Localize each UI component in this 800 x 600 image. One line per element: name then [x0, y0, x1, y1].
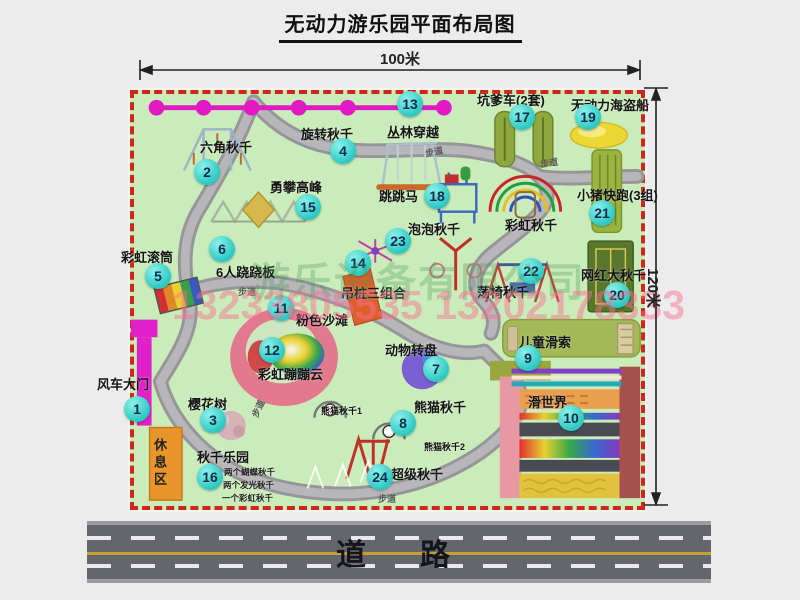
page-title: 无动力游乐园平面布局图	[0, 8, 800, 43]
item-label: 彩虹蹦蹦云	[258, 364, 323, 383]
item-label: 跳跳马	[379, 186, 418, 205]
item-number-badge: 13	[397, 91, 423, 117]
item-number-badge: 12	[259, 337, 285, 363]
extra-label: 彩虹秋千	[505, 215, 557, 234]
walkway-label: 步道	[539, 155, 559, 170]
item-number-badge: 8	[390, 410, 416, 436]
item-number-badge: 16	[197, 464, 223, 490]
item-note: 一个彩虹秋千	[222, 492, 273, 504]
item-number-badge: 7	[423, 356, 449, 382]
extra-label: 熊猫秋千1	[321, 404, 362, 417]
walkway-label: 步道	[378, 492, 396, 505]
item-label: 泡泡秋千	[408, 219, 460, 238]
swing-paradise-icon	[308, 461, 377, 488]
item-label: 熊猫秋千	[414, 397, 466, 416]
item-label: 动物转盘	[385, 340, 437, 359]
item-label: 超级秋千	[391, 464, 443, 483]
item-note: 两个发光秋千	[223, 479, 274, 491]
item-label: 风车大门	[97, 374, 149, 393]
item-number-badge: 3	[200, 407, 226, 433]
item-label: 坑爹车(2套)	[477, 90, 545, 109]
item-number-badge: 18	[424, 183, 450, 209]
park-layout-page: 无动力游乐园平面布局图 100米 120米	[0, 0, 800, 600]
item-label: 小猪快跑(3组)	[577, 185, 658, 204]
rest-area-label: 休息区	[150, 438, 169, 489]
item-label: 彩虹滚筒	[121, 247, 173, 266]
item-number-badge: 24	[367, 464, 393, 490]
item-number-badge: 21	[589, 200, 615, 226]
climbing-peak-icon	[211, 192, 305, 227]
extra-label: 熊猫秋千2	[424, 440, 465, 453]
item-number-badge: 4	[330, 138, 356, 164]
item-number-badge: 15	[295, 194, 321, 220]
item-label: 六角秋千	[200, 137, 252, 156]
item-number-badge: 5	[145, 263, 171, 289]
watermark-phone: 13233805535 13202178333	[172, 282, 685, 329]
item-number-badge: 19	[575, 104, 601, 130]
item-number-badge: 1	[124, 396, 150, 422]
width-dimension-label: 100米	[340, 48, 460, 69]
item-label: 勇攀高峰	[270, 177, 322, 196]
height-dimension-label: 120米	[643, 268, 664, 308]
item-number-badge: 9	[515, 345, 541, 371]
item-label: 丛林穿越	[387, 122, 439, 141]
item-number-badge: 6	[209, 236, 235, 262]
road-label: 道 路	[87, 525, 711, 579]
item-number-badge: 10	[558, 405, 584, 431]
item-number-badge: 17	[509, 104, 535, 130]
item-note: 两个蝴蝶秋千	[224, 466, 275, 478]
item-number-badge: 2	[194, 159, 220, 185]
item-label: 秋千乐园	[197, 447, 249, 466]
road: 道 路	[87, 521, 711, 583]
